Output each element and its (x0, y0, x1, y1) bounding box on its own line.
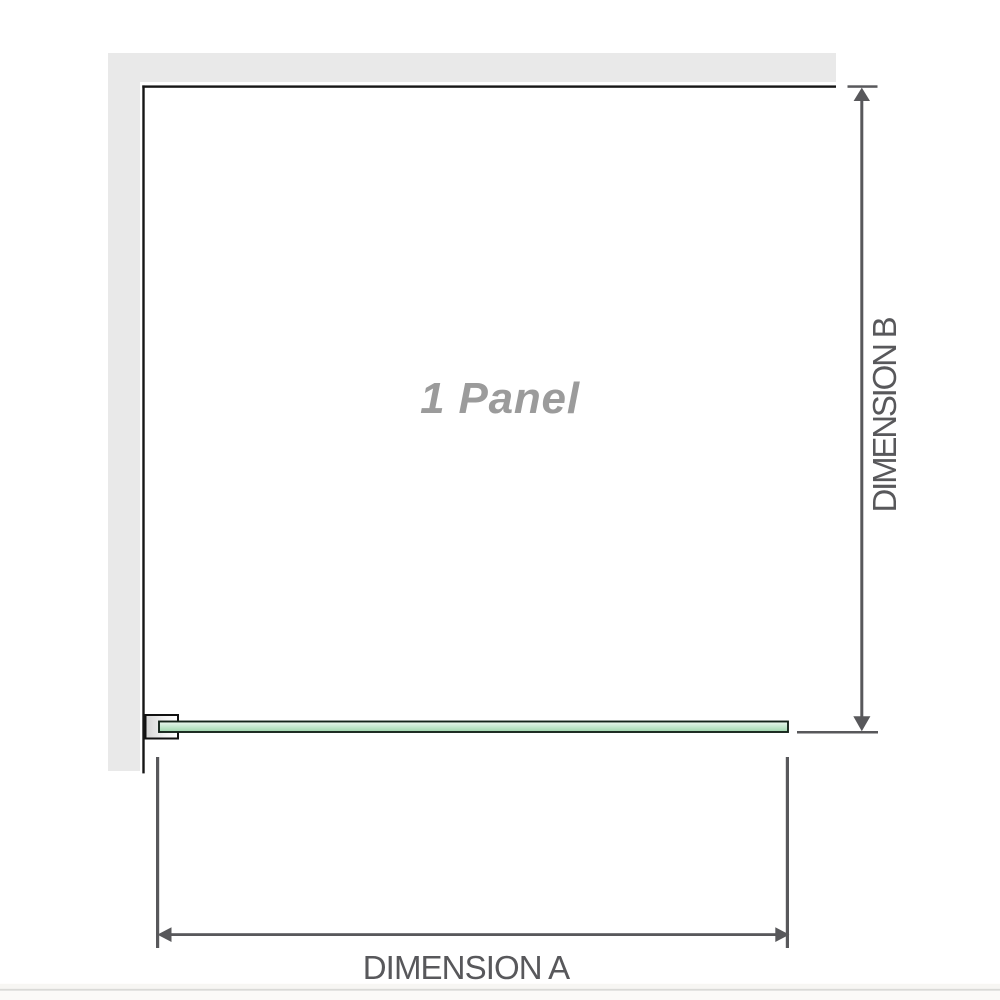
svg-text:1 Panel: 1 Panel (420, 374, 580, 423)
svg-text:DIMENSION B: DIMENSION B (866, 317, 903, 512)
svg-text:DIMENSION A: DIMENSION A (363, 949, 570, 986)
